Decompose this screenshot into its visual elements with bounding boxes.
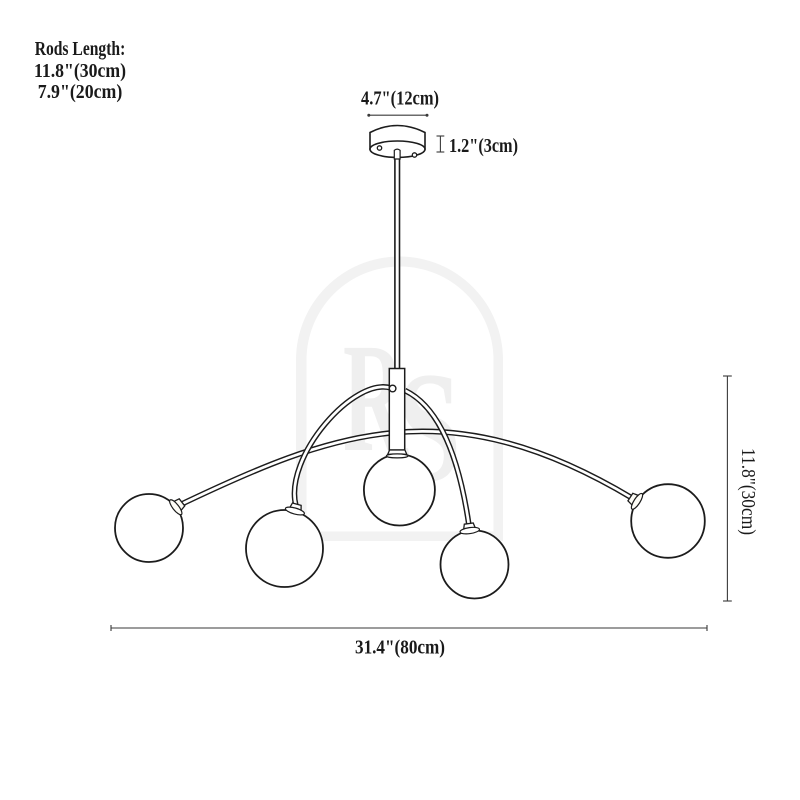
- svg-text:7.9"(20cm): 7.9"(20cm): [38, 81, 123, 103]
- svg-text:11.8"(30cm): 11.8"(30cm): [34, 60, 126, 82]
- svg-text:Rods Length:: Rods Length:: [35, 38, 126, 60]
- svg-text:31.4"(80cm): 31.4"(80cm): [355, 637, 445, 659]
- svg-text:4.7"(12cm): 4.7"(12cm): [361, 88, 439, 110]
- svg-text:1.2"(3cm): 1.2"(3cm): [449, 135, 518, 157]
- svg-text:11.8"(30cm): 11.8"(30cm): [737, 448, 759, 535]
